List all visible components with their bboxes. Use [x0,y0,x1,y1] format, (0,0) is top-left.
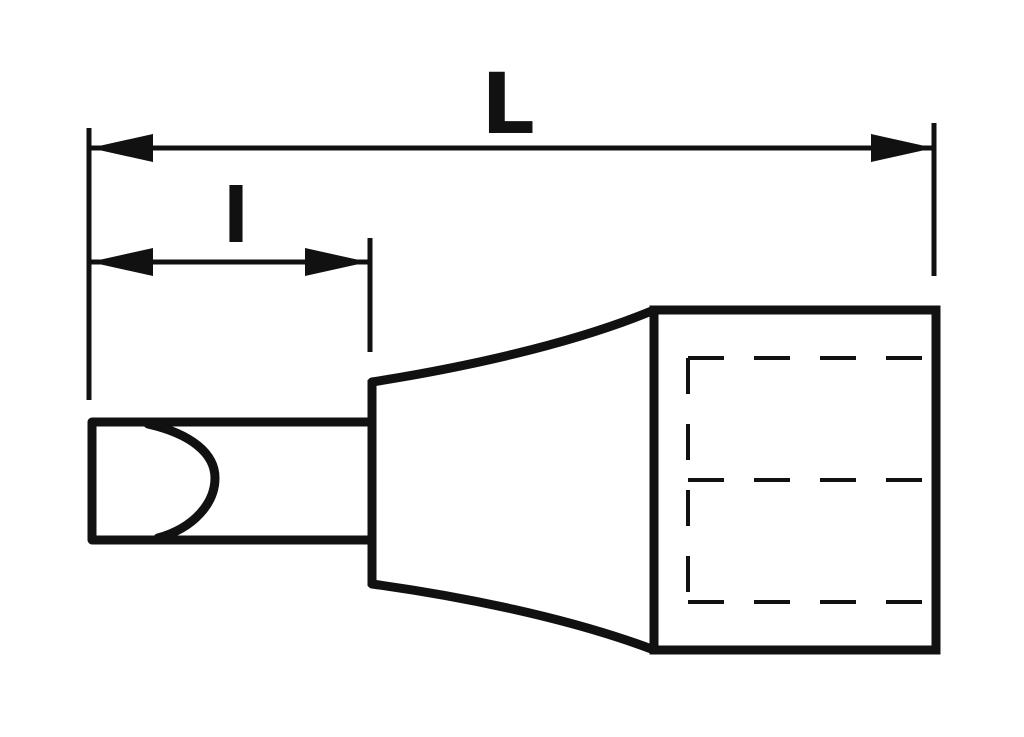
bit-length-arrowhead-left-icon [90,248,153,276]
overall-length-arrowhead-right-icon [871,134,934,162]
bit-socket-body [92,310,936,650]
bit-length-arrowhead-right-icon [305,248,368,276]
drawing-canvas: L l [0,0,1024,737]
taper-top-curve [372,310,654,382]
bit-length-dimension: l [90,172,370,352]
overall-length-arrowhead-left-icon [90,134,153,162]
overall-length-label: L [481,55,535,153]
bit-socket-technical-drawing: L l [0,0,1024,737]
overall-length-dimension: L [89,55,934,400]
taper-bottom-curve [372,584,654,650]
bit-length-label: l [223,172,249,260]
drive-hole-hidden-lines [688,358,932,602]
blade-grind-curve [148,424,215,538]
blade-shaft-outline [92,422,372,540]
